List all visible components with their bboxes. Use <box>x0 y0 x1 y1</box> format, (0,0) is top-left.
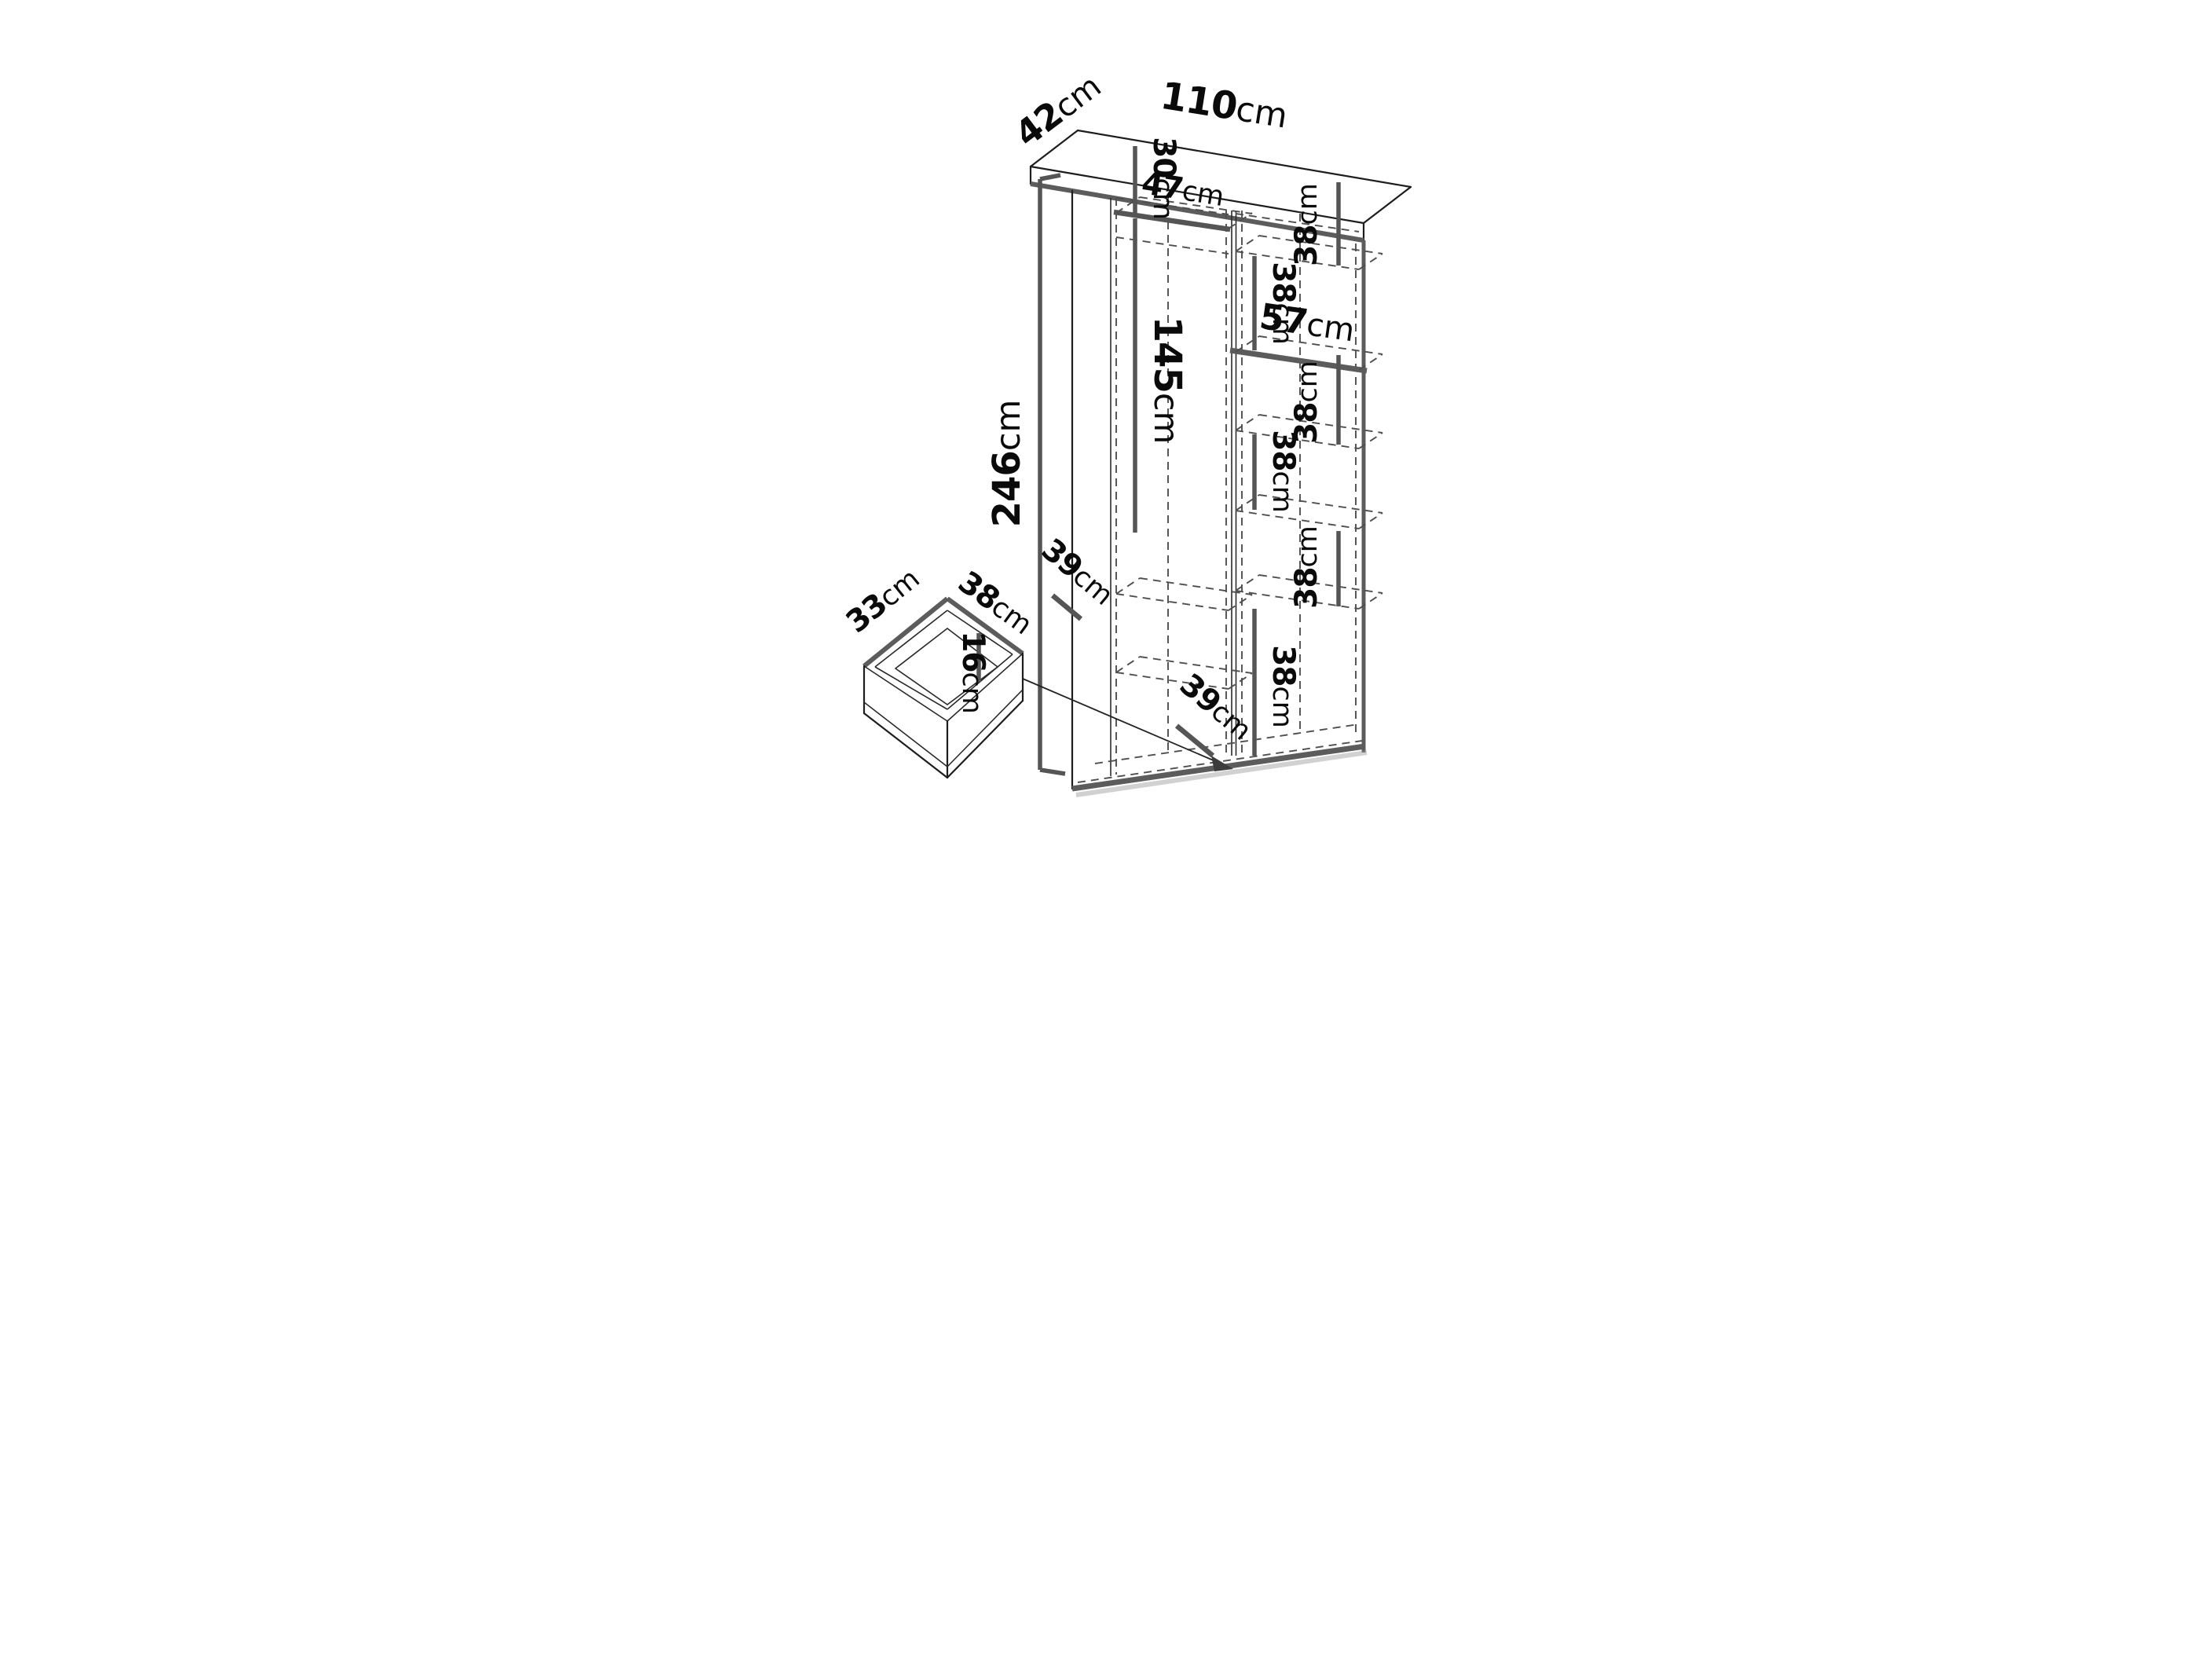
label-hanging-145cm: 145cm <box>1145 317 1189 445</box>
label-compartment5-38cm: 38cm <box>1289 526 1324 609</box>
lower-shelf-depth-left <box>1116 657 1140 672</box>
bottom-shadow <box>1076 753 1367 795</box>
label-drawer-16cm: 16cm <box>955 631 991 714</box>
shelf-39-back-dashed <box>1140 578 1252 595</box>
label-height-246cm: 246cm <box>985 400 1029 528</box>
shelf1-depth-left <box>1236 236 1259 251</box>
label-compartment1-38cm: 38cm <box>1289 183 1324 266</box>
label-depth-39cm-left: 39cm <box>1035 532 1121 612</box>
drawer-bottom-left-edge <box>864 713 947 778</box>
dim-line-246-tick-bottom <box>1040 770 1065 774</box>
dim-bar-39-left <box>1053 595 1081 619</box>
diagram-page: 42cm 110cm 30cm 47cm 38cm 38cm 57cm 38cm… <box>553 0 1659 829</box>
shelf-39-depth-left <box>1116 578 1140 594</box>
dim-bar-39-right <box>1177 726 1213 756</box>
label-compartment6-38cm: 38cm <box>1265 645 1301 728</box>
label-width-110cm: 110cm <box>1158 74 1291 137</box>
wardrobe-dimension-diagram: 42cm 110cm 30cm 47cm 38cm 38cm 57cm 38cm… <box>553 0 1659 829</box>
shelf3-depth-left <box>1236 415 1259 430</box>
shelf5-depth-left <box>1236 575 1259 591</box>
shelf-39-front-dashed <box>1116 594 1229 610</box>
label-compartment4-38cm: 38cm <box>1265 430 1301 513</box>
